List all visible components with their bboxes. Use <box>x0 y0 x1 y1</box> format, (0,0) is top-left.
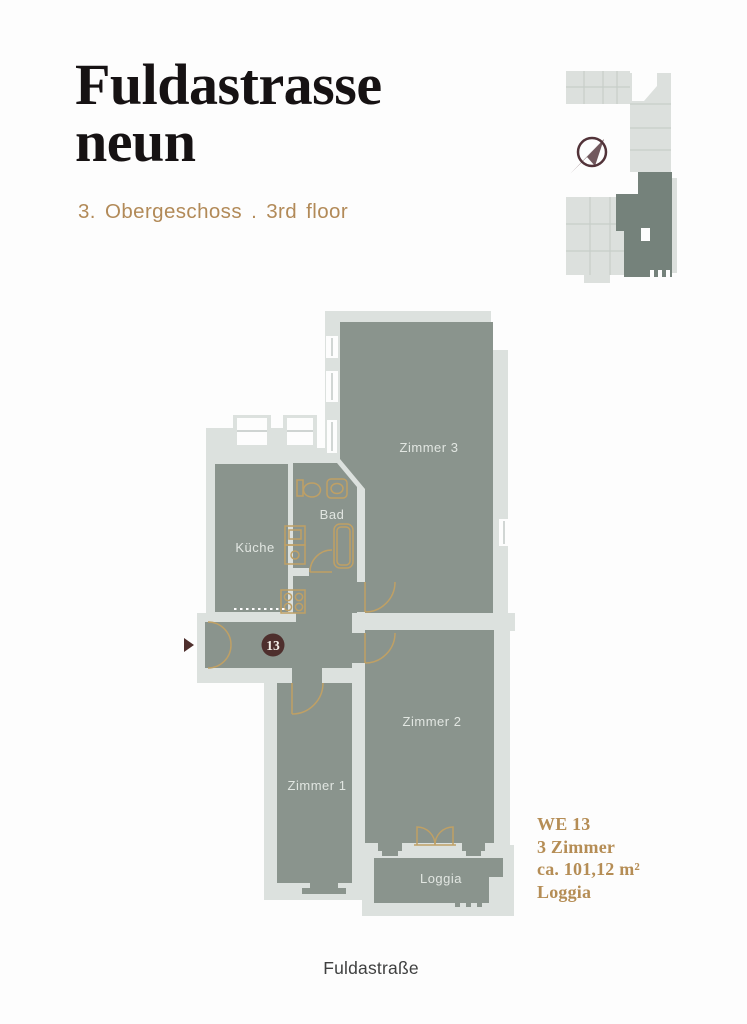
zimmer1-bay-step <box>302 888 346 894</box>
building-overview-minimap <box>566 71 677 283</box>
entrance-arrow-icon <box>184 638 194 652</box>
room-label-kueche: Küche <box>235 540 274 555</box>
minimap-unit-cut <box>641 228 650 241</box>
room-zimmer2-floor <box>365 630 494 843</box>
unit-badge: 13 <box>262 634 285 657</box>
minimap-window-notch <box>666 270 670 277</box>
loggia-railing-tooth <box>455 903 460 907</box>
room-label-bad: Bad <box>320 507 345 522</box>
unit-id: WE 13 <box>537 813 640 836</box>
minimap-unit-highlight <box>616 172 672 277</box>
street-label: Fuldastraße <box>271 958 471 979</box>
unit-badge-number: 13 <box>266 638 280 653</box>
room-label-zimmer2: Zimmer 2 <box>403 714 462 729</box>
room-label-loggia: Loggia <box>420 871 462 886</box>
doorway-zimmer3 <box>352 582 365 612</box>
room-label-zimmer3: Zimmer 3 <box>400 440 459 455</box>
window-sill <box>462 843 485 851</box>
minimap-stair-bump <box>584 275 610 283</box>
window-sill <box>382 851 398 856</box>
bad-wall-stub <box>293 568 309 576</box>
window-sill <box>378 843 402 851</box>
doorway-hall-zimmer1 <box>292 668 322 683</box>
unit-area: ca. 101,12 m² <box>537 858 640 881</box>
loggia-railing-tooth <box>477 903 482 907</box>
brochure-page: Fuldastrasse neun 3. Obergeschoss . 3rd … <box>0 0 747 1024</box>
unit-feature: Loggia <box>537 881 640 904</box>
unit-rooms: 3 Zimmer <box>537 836 640 859</box>
loggia-railing-tooth <box>466 903 471 907</box>
doorway-zimmer2 <box>352 633 365 663</box>
minimap-window-notch <box>650 270 654 277</box>
zimmer1-bay-step <box>310 883 338 888</box>
room-kueche-floor <box>215 464 288 612</box>
compass-icon <box>570 138 606 174</box>
floor-plan: Küche Bad Zimmer 3 Zimmer 1 Zimmer 2 Log… <box>184 311 515 916</box>
minimap-window-notch <box>658 270 662 277</box>
window-sill <box>466 851 481 856</box>
room-label-zimmer1: Zimmer 1 <box>288 778 347 793</box>
unit-info-block: WE 13 3 Zimmer ca. 101,12 m² Loggia <box>537 813 640 903</box>
